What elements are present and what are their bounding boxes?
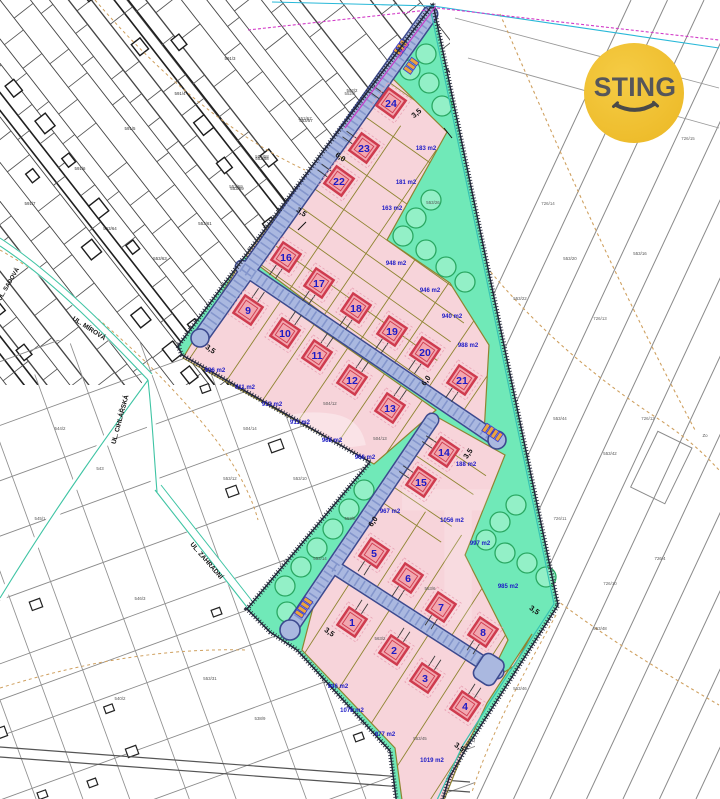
svg-text:6: 6 [405,573,411,585]
svg-text:940 m2: 940 m2 [442,314,463,320]
svg-text:726/10: 726/10 [603,581,617,586]
svg-text:726/11: 726/11 [553,516,567,521]
svg-text:591/6: 591/6 [75,166,87,171]
svg-text:553/63: 553/63 [153,256,167,261]
svg-text:726/14: 726/14 [541,201,555,206]
svg-text:553/58: 553/58 [255,154,269,159]
svg-text:553/26: 553/26 [426,200,440,205]
svg-text:14: 14 [438,447,450,459]
svg-text:545/1: 545/1 [35,516,47,521]
svg-text:24: 24 [385,98,397,110]
svg-text:553/6: 553/6 [425,586,437,591]
svg-text:553/20: 553/20 [563,256,577,261]
svg-text:4: 4 [462,701,468,713]
svg-text:17: 17 [313,278,325,290]
svg-text:7: 7 [438,602,444,614]
svg-text:553/22: 553/22 [513,296,527,301]
svg-text:946 m2: 946 m2 [328,684,349,690]
svg-text:STING: STING [594,72,676,102]
svg-text:22: 22 [333,176,345,188]
svg-text:181 m2: 181 m2 [396,180,417,186]
svg-text:2: 2 [391,645,397,657]
svg-text:936 m2: 936 m2 [205,368,226,374]
svg-text:988 m2: 988 m2 [458,343,479,349]
svg-text:5: 5 [371,548,377,560]
svg-text:21: 21 [456,375,468,387]
svg-text:553/12: 553/12 [223,476,237,481]
svg-text:23: 23 [358,143,370,155]
svg-text:183 m2: 183 m2 [416,146,437,152]
svg-text:726/15: 726/15 [681,136,695,141]
svg-text:20: 20 [419,347,431,359]
svg-text:504/12: 504/12 [323,401,337,406]
svg-text:552/2: 552/2 [345,91,357,96]
svg-text:544/2: 544/2 [55,426,67,431]
svg-text:553/8: 553/8 [345,516,357,521]
svg-text:1: 1 [349,617,355,629]
svg-text:163 m2: 163 m2 [382,206,403,212]
svg-text:968 m2: 968 m2 [322,438,343,444]
svg-text:540/2: 540/2 [115,696,127,701]
svg-text:16: 16 [280,252,292,264]
svg-text:553/44: 553/44 [553,416,567,421]
svg-text:553/57: 553/57 [298,116,312,121]
svg-text:977 m2: 977 m2 [375,732,396,738]
svg-text:553/59: 553/59 [229,184,243,189]
svg-text:553/45: 553/45 [413,736,427,741]
svg-text:504/14: 504/14 [243,426,257,431]
svg-text:911 m2: 911 m2 [235,385,256,391]
svg-text:553/14: 553/14 [313,556,327,561]
svg-text:726/12: 726/12 [641,416,655,421]
svg-text:591/4: 591/4 [175,91,187,96]
svg-text:1019 m2: 1019 m2 [420,758,444,764]
svg-text:946 m2: 946 m2 [420,288,441,294]
svg-text:19: 19 [386,326,398,338]
svg-text:966 m2: 966 m2 [355,455,376,461]
svg-text:553/64: 553/64 [103,226,117,231]
svg-text:553/61: 553/61 [198,221,212,226]
svg-text:504/13: 504/13 [373,436,387,441]
svg-text:913 m2: 913 m2 [262,402,283,408]
svg-text:9: 9 [245,305,251,317]
svg-text:591/7: 591/7 [25,201,37,206]
svg-text:997 m2: 997 m2 [470,541,491,547]
svg-text:188 m2: 188 m2 [456,462,477,468]
svg-text:591/3: 591/3 [225,56,237,61]
svg-text:553/31: 553/31 [203,676,217,681]
svg-text:10: 10 [279,328,291,340]
svg-text:591/5: 591/5 [125,126,137,131]
svg-text:Zo: Zo [702,433,708,438]
svg-text:1076 m2: 1076 m2 [340,708,364,714]
svg-text:1056 m2: 1056 m2 [440,518,464,524]
svg-text:538/9: 538/9 [255,716,267,721]
svg-text:18: 18 [350,303,362,315]
svg-text:543: 543 [96,466,104,471]
svg-text:967 m2: 967 m2 [380,509,401,515]
svg-text:3: 3 [422,673,428,685]
svg-text:15: 15 [415,477,427,489]
svg-text:553/46: 553/46 [513,686,527,691]
svg-text:726/13: 726/13 [593,316,607,321]
svg-text:948 m2: 948 m2 [386,261,407,267]
svg-text:553/42: 553/42 [603,451,617,456]
svg-text:546/3: 546/3 [135,596,147,601]
svg-text:8: 8 [480,627,486,639]
svg-text:553/16: 553/16 [633,251,647,256]
svg-text:563/2: 563/2 [375,636,387,641]
svg-text:726/4: 726/4 [655,556,667,561]
svg-text:553/48: 553/48 [593,626,607,631]
svg-text:12: 12 [346,375,358,387]
svg-text:13: 13 [384,403,396,415]
svg-text:11: 11 [311,350,322,362]
svg-text:985 m2: 985 m2 [498,584,519,590]
svg-text:911 m2: 911 m2 [290,420,311,426]
svg-text:553/10: 553/10 [293,476,307,481]
